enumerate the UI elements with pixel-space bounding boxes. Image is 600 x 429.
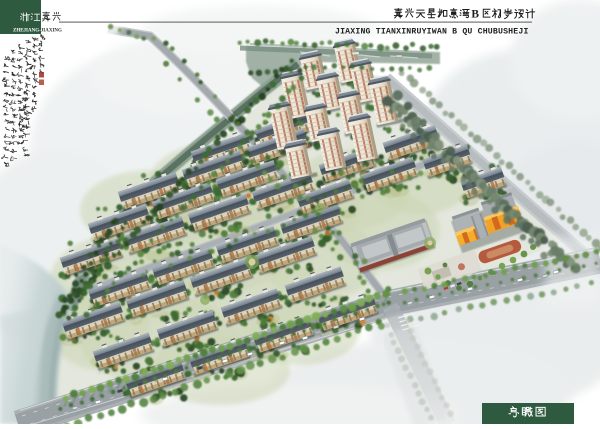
svg-text:JIAXING TIANXINRUYIWAN B QU CH: JIAXING TIANXINRUYIWAN B QU CHUBUSHEJI [335, 27, 529, 36]
svg-text:B: B [471, 9, 479, 21]
